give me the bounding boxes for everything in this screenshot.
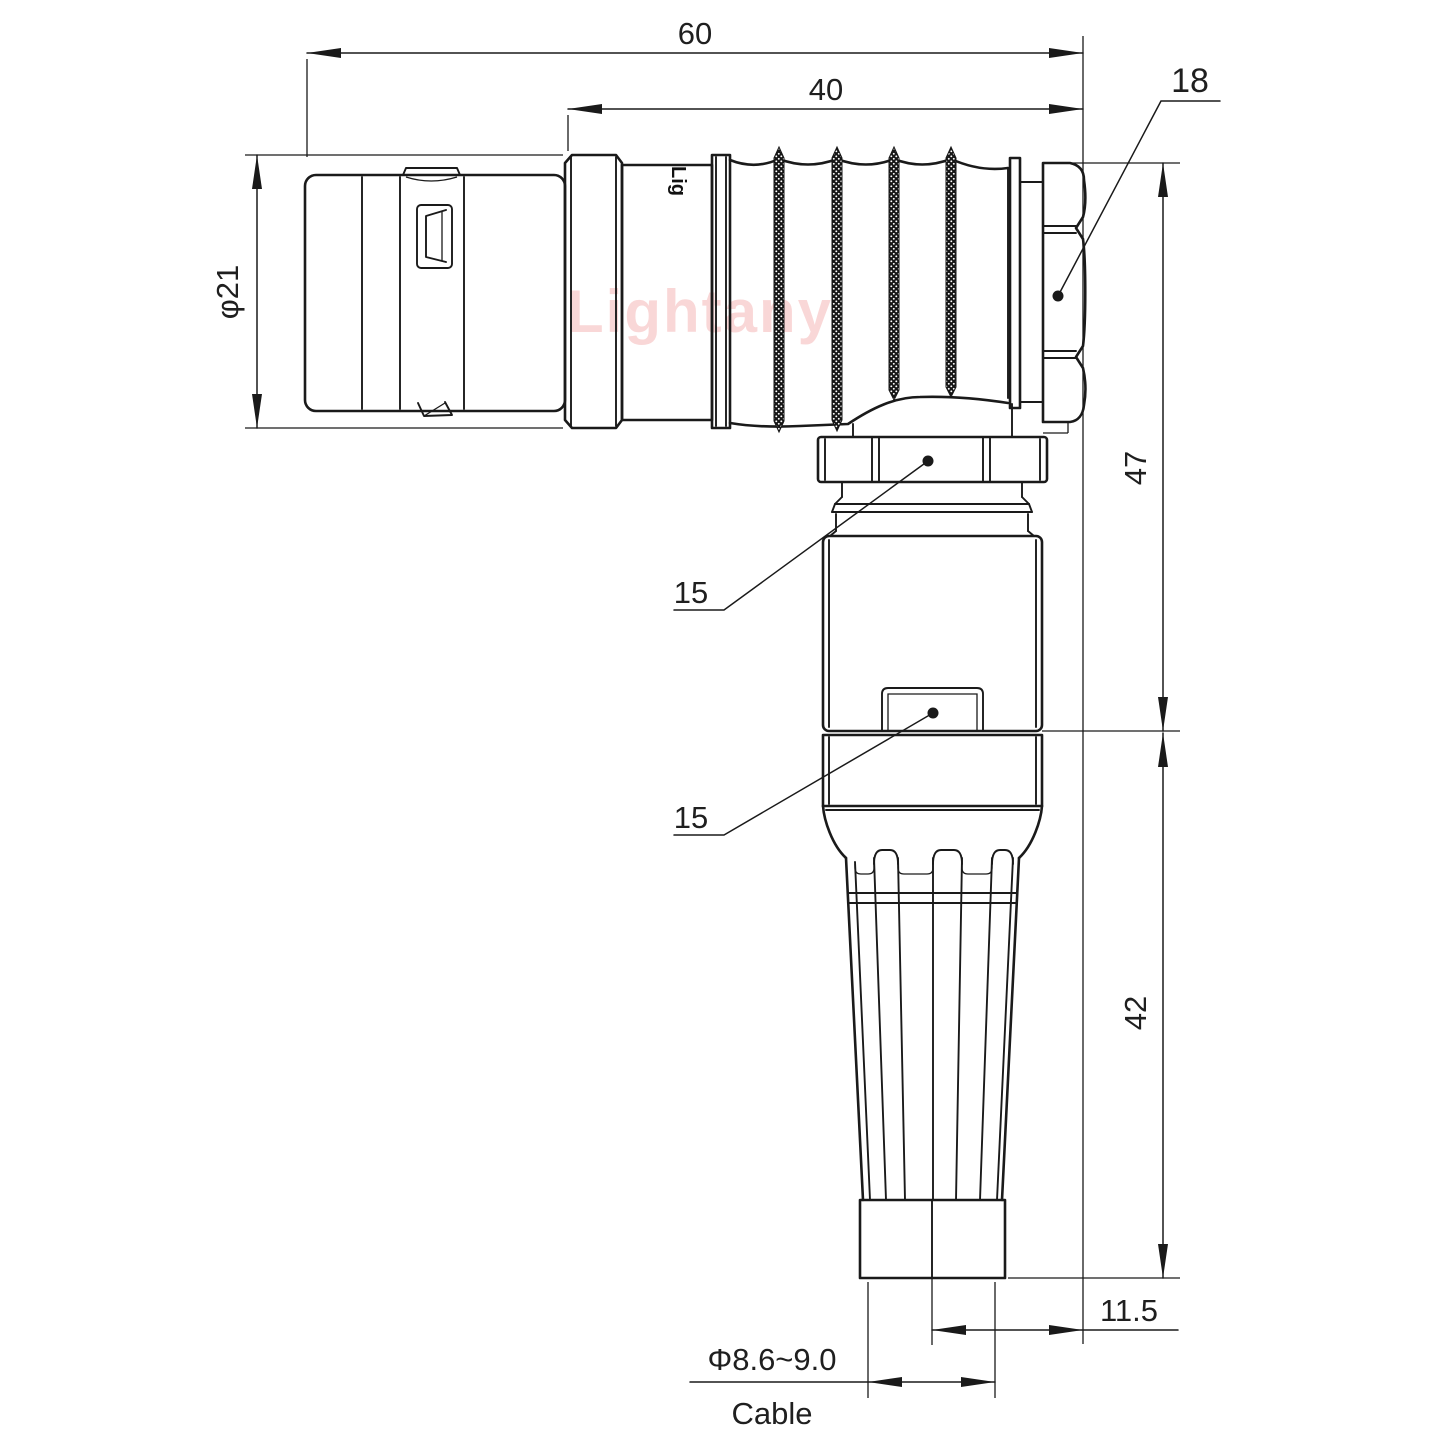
dim-cable-offset: 11.5 — [932, 1293, 1178, 1335]
dim-front-diameter-label: φ21 — [210, 265, 245, 320]
cable-word-label: Cable — [732, 1396, 813, 1431]
knurl-band — [832, 147, 842, 431]
elbow-neck — [853, 404, 1012, 437]
dim-rear-length: 40 — [568, 72, 1083, 114]
dim-front-diameter: φ21 — [210, 155, 262, 428]
leader-nut: 18 — [1053, 62, 1221, 302]
latch-window — [417, 205, 452, 268]
fin-cap — [874, 850, 898, 864]
knurl-band — [774, 147, 784, 432]
cable-sleeve — [860, 1200, 1005, 1278]
dim-cable-offset-label: 11.5 — [1100, 1293, 1158, 1328]
technical-drawing-page: Lightany — [0, 0, 1440, 1440]
dim-total-length: 60 — [307, 16, 1083, 58]
strain-relief-fins — [846, 850, 1019, 1200]
dim-upper-height: 47 — [1118, 163, 1168, 731]
leader-backshell: 15 — [674, 708, 939, 836]
leader-nut-label: 18 — [1171, 62, 1209, 100]
plug-shell — [305, 168, 565, 416]
dim-lower-height-label: 42 — [1118, 996, 1153, 1030]
dim-lower-height: 42 — [1118, 733, 1168, 1278]
collar — [830, 482, 1034, 536]
dim-rear-length-label: 40 — [809, 72, 843, 107]
leader-gland-hex: 15 — [674, 456, 934, 611]
hex-nut — [1043, 163, 1085, 433]
retaining-rings — [1010, 158, 1043, 422]
knurl-band — [946, 147, 956, 397]
body-brand-text: Lig — [667, 166, 689, 196]
connector-lower-assembly — [818, 437, 1047, 1278]
leader-backshell-label: 15 — [674, 800, 708, 835]
fin-cap — [992, 850, 1013, 864]
latch-tab — [418, 402, 452, 416]
knurl-band — [889, 147, 899, 400]
watermark-text: Lightany — [567, 278, 833, 345]
lower-housing — [823, 735, 1042, 810]
strain-relief — [823, 806, 1042, 1200]
leader-gland-hex-label: 15 — [674, 575, 708, 610]
connector-dimension-drawing: Lightany — [0, 0, 1440, 1440]
dim-upper-height-label: 47 — [1118, 451, 1153, 485]
dim-cable-diameter: Φ8.6~9.0 Cable — [690, 1342, 995, 1431]
dim-cable-diameter-label: Φ8.6~9.0 — [707, 1342, 836, 1377]
dim-total-length-label: 60 — [678, 16, 712, 51]
fin-cap — [933, 850, 962, 864]
backshell — [823, 536, 1042, 735]
